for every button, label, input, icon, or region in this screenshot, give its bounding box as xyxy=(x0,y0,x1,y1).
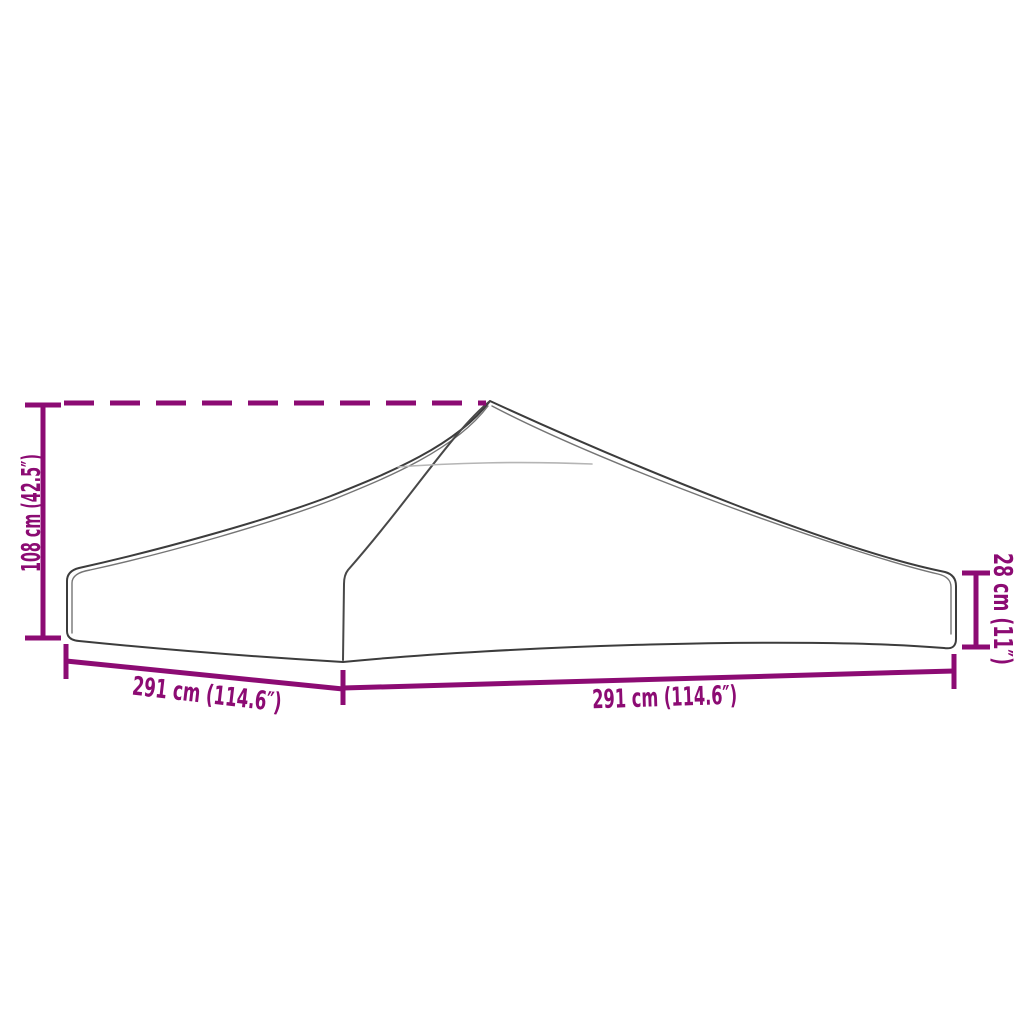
valance-height-dimension: 28 cm (11″) xyxy=(962,553,1017,665)
canopy-silhouette xyxy=(67,401,956,662)
valance-height-label: 28 cm (11″) xyxy=(987,553,1017,665)
product-diagram: 108 cm (42.5″) 28 cm (11″) 291 cm (114.6… xyxy=(0,0,1024,1024)
peak-height-label: 108 cm (42.5″) xyxy=(17,454,47,572)
canopy-drawing xyxy=(67,401,956,662)
right-width-label: 291 cm (114.6″) xyxy=(592,681,738,716)
right-width-dimension: 291 cm (114.6″) xyxy=(343,654,954,715)
product-image: 108 cm (42.5″) 28 cm (11″) 291 cm (114.6… xyxy=(0,0,1024,1024)
